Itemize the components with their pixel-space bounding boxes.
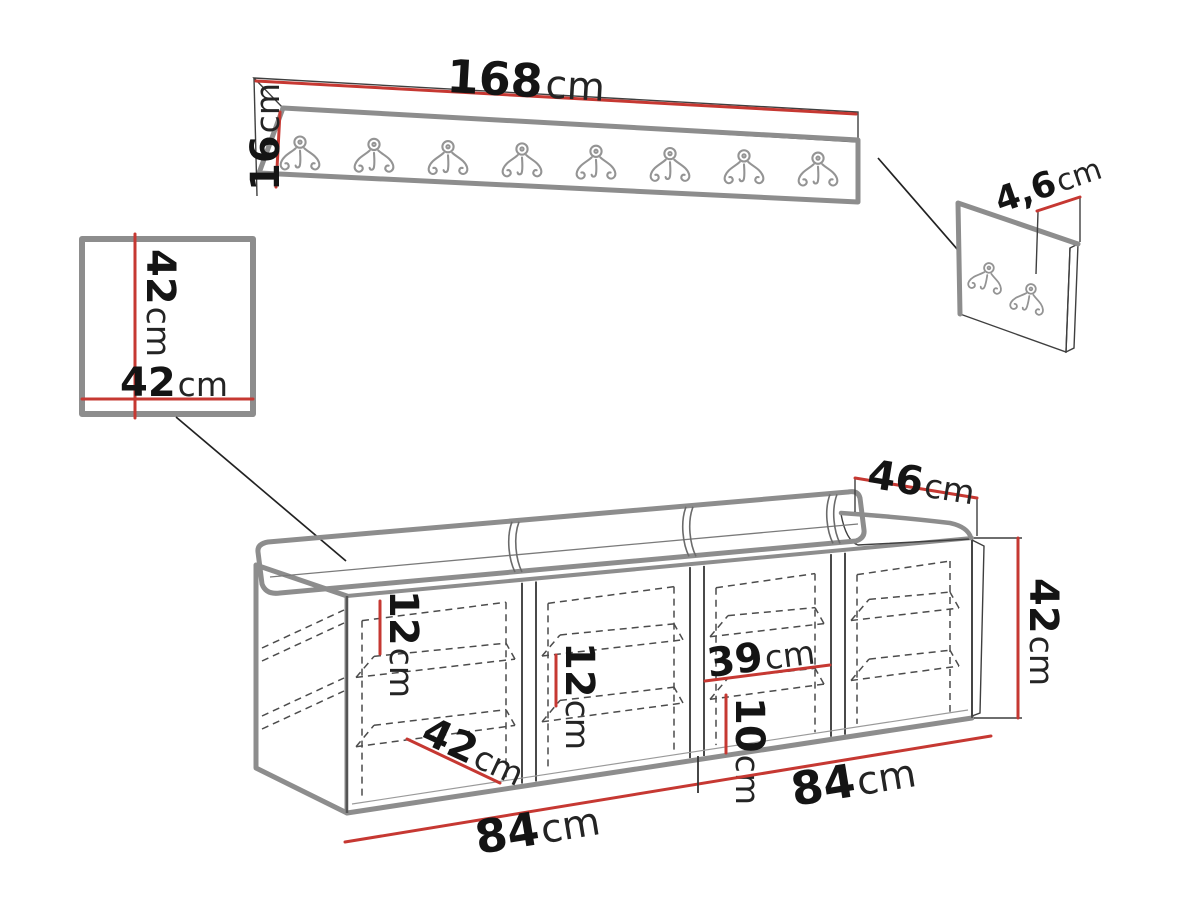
comp1-shelf-label: 12cm <box>380 590 426 698</box>
square-height-label: 42cm <box>137 249 183 357</box>
cushion-split-line <box>834 494 840 543</box>
rack-width-label: 168cm <box>445 49 606 112</box>
square-width-label: 42cm <box>120 360 228 406</box>
cushion-split-line <box>690 507 696 557</box>
bench-depth-label: 46cm <box>864 451 978 514</box>
coat-rack-drawing: 168cm 16cm <box>243 49 964 257</box>
coat-hook-icon <box>725 150 764 183</box>
bench-left-side-panel <box>256 565 347 813</box>
coat-hook-icon <box>799 153 838 186</box>
bench-width-right-label: 84cm <box>787 743 920 817</box>
coat-hook-icon <box>577 146 616 179</box>
cushion-split-line <box>683 507 689 557</box>
diagram-canvas: 168cm 16cm 4,6cm 42cm 42cm <box>0 0 1200 900</box>
bench-left-side-shelf-lines <box>262 610 344 729</box>
rack-front-face <box>259 108 858 202</box>
cushion-split-line <box>516 522 522 572</box>
cushion-split-line <box>509 522 515 572</box>
furniture-dimension-diagram: 168cm 16cm 4,6cm 42cm 42cm <box>0 0 1200 900</box>
rack-height-label: 16cm <box>243 83 289 191</box>
comp2-shelf-label: 12cm <box>556 642 602 750</box>
panel-thickness-label: 4,6cm <box>990 148 1107 222</box>
coat-hook-icon <box>503 143 542 176</box>
bench-drawing: 46cm 42cm 12cm 12cm 39cm 10cm 42cm 84cm … <box>256 451 1066 864</box>
cushion-split-line <box>827 494 833 543</box>
coat-hook-icon <box>355 139 394 172</box>
coat-hook-icon <box>429 141 468 174</box>
square-panel-drawing: 42cm 42cm <box>82 234 346 561</box>
bench-width-left-label: 84cm <box>471 791 604 865</box>
coat-hook-icon <box>651 148 690 181</box>
bench-right-side-sliver <box>972 540 984 716</box>
bench-height-label: 42cm <box>1020 578 1066 686</box>
rack-to-panel-leader-line <box>878 158 964 257</box>
hook-panel-drawing: 4,6cm <box>958 148 1107 352</box>
comp3-shelf-label: 10cm <box>726 697 772 805</box>
